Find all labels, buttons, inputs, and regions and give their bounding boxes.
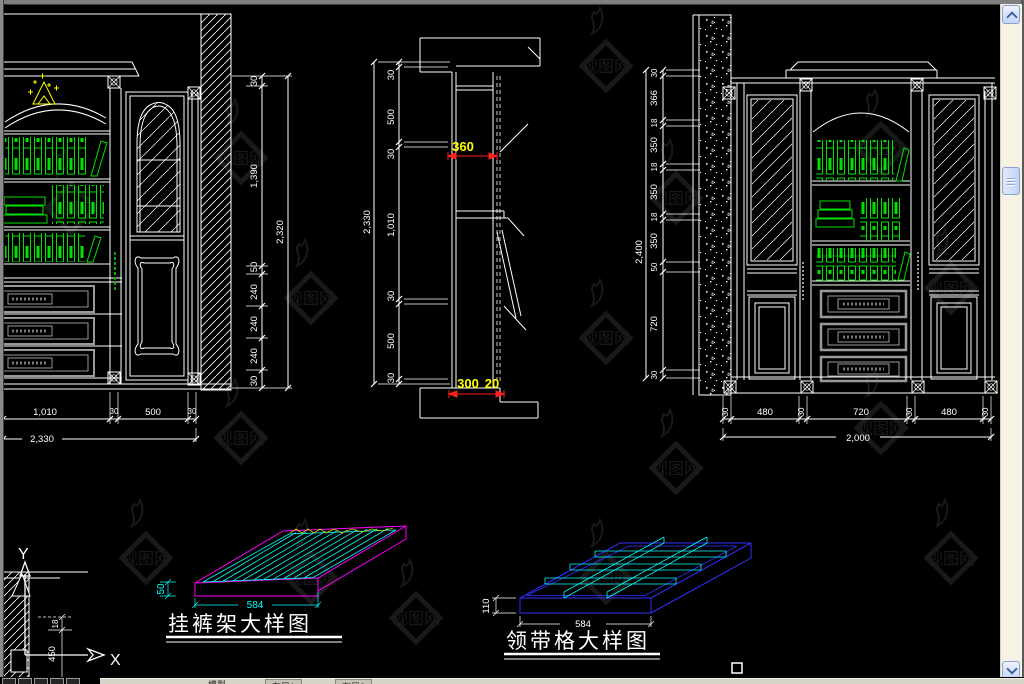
mini-toolbar-button[interactable] [34,678,48,684]
dim-text: 30 [386,291,397,302]
left-drawers [0,286,94,376]
dim-text: 20 [485,376,499,391]
dim-text: 18 [650,118,659,127]
dim-text: 2,330 [362,210,373,234]
bottom-bar: 模型 布局1 布局2 [0,677,1024,684]
thumb-grip-icon [1007,181,1015,183]
dim-text: 300 [457,376,479,391]
section-view-drawing: 360 300 20 [420,38,540,418]
tie-grid-title: 领带格大样图 [506,630,650,653]
dim-text: 240 [249,316,260,332]
dim-text: 584 [247,600,264,611]
section-view-dimensions: 30 500 30 1,010 30 500 30 2,330 [362,59,450,387]
dim-text: 2,000 [846,433,870,444]
dim-text: 30 [249,376,260,387]
dim-text: 480 [757,407,773,418]
dim-text: 30 [905,407,914,416]
cad-application-window: 视图网 [0,0,1024,684]
corner-detail-drawing: 18 450 [3,572,88,684]
dim-text: 30 [386,373,397,384]
scroll-up-button[interactable] [1002,5,1020,24]
dim-text: 240 [249,348,260,364]
dim-text: 350 [649,137,660,153]
right-drawers [821,291,906,381]
thumb-grip-icon [1007,184,1015,186]
dim-text: 110 [481,598,492,613]
dim-text: 240 [249,284,260,300]
dim-text: 350 [649,233,660,249]
dim-text: 720 [853,407,869,418]
dim-text: 500 [145,407,161,418]
dim-text: 450 [47,646,58,662]
dim-text: 366 [649,90,660,106]
dim-text: 50 [650,262,659,271]
window-border-left [0,0,4,684]
dim-text: 30 [650,370,659,379]
right-elevation-drawing [693,15,998,395]
trouser-rack-detail: 50 584 挂裤架大样图 [156,526,406,642]
mini-toolbar [2,678,80,684]
mini-toolbar-button[interactable] [66,678,80,684]
ucs-icon: Y X [18,546,121,669]
tie-grid-detail: 110 584 领带格大样图 [481,537,751,659]
dim-text: 30 [650,68,659,77]
ucs-y-label: Y [18,546,29,563]
dim-text: 30 [386,149,397,160]
decor-plant [28,74,59,105]
tab-layout1[interactable]: 布局1 [265,679,302,684]
dim-text: 2,320 [275,220,286,244]
dim-text: 50 [156,583,167,595]
vertical-scrollbar[interactable] [1000,4,1022,681]
scrollbar-thumb[interactable] [1002,167,1020,195]
dim-text: 50 [249,262,260,273]
dim-text: 30 [981,407,990,416]
window-border-top [0,0,1024,5]
dim-text: 1,010 [386,213,397,237]
tie-dims [492,595,654,627]
dim-text: 30 [110,407,119,416]
dim-text: 2,400 [634,240,645,264]
mini-toolbar-button[interactable] [18,678,32,684]
left-elevation-drawing [0,14,231,390]
dim-text: 18 [650,162,659,171]
dim-text: 350 [649,184,660,200]
ucs-x-label: X [110,652,121,669]
dim-text: 500 [386,333,397,349]
dim-text: 2,330 [30,434,54,445]
chevron-down-icon [1006,663,1017,674]
dim-text: 30 [797,407,806,416]
trouser-rack-title: 挂裤架大样图 [168,613,312,636]
layout-tab-strip: 模型 布局1 布局2 [100,678,1024,684]
selection-grip[interactable] [732,663,742,673]
dim-text: 1,010 [33,407,57,418]
thumb-grip-icon [1007,178,1015,180]
dim-text: 30 [721,407,730,416]
dim-text: 30 [249,76,260,87]
dim-text: 30 [386,70,397,81]
dim-text: 584 [575,619,591,630]
tab-model[interactable]: 模型 [208,678,226,684]
dim-text: 500 [386,109,397,125]
tab-layout2[interactable]: 布局2 [335,679,372,684]
dim-text: 18 [650,212,659,221]
dim-text: 360 [452,139,474,154]
dim-text: 1,390 [249,164,260,188]
mini-toolbar-button[interactable] [50,678,64,684]
dim-text: 720 [649,316,660,332]
cad-drawing-canvas[interactable]: 视图网 [0,0,1024,684]
dim-text: 30 [188,407,197,416]
dim-text: 480 [941,407,957,418]
mini-toolbar-button[interactable] [2,678,16,684]
chevron-up-icon [1006,11,1017,22]
dim-text: 18 [51,619,60,628]
